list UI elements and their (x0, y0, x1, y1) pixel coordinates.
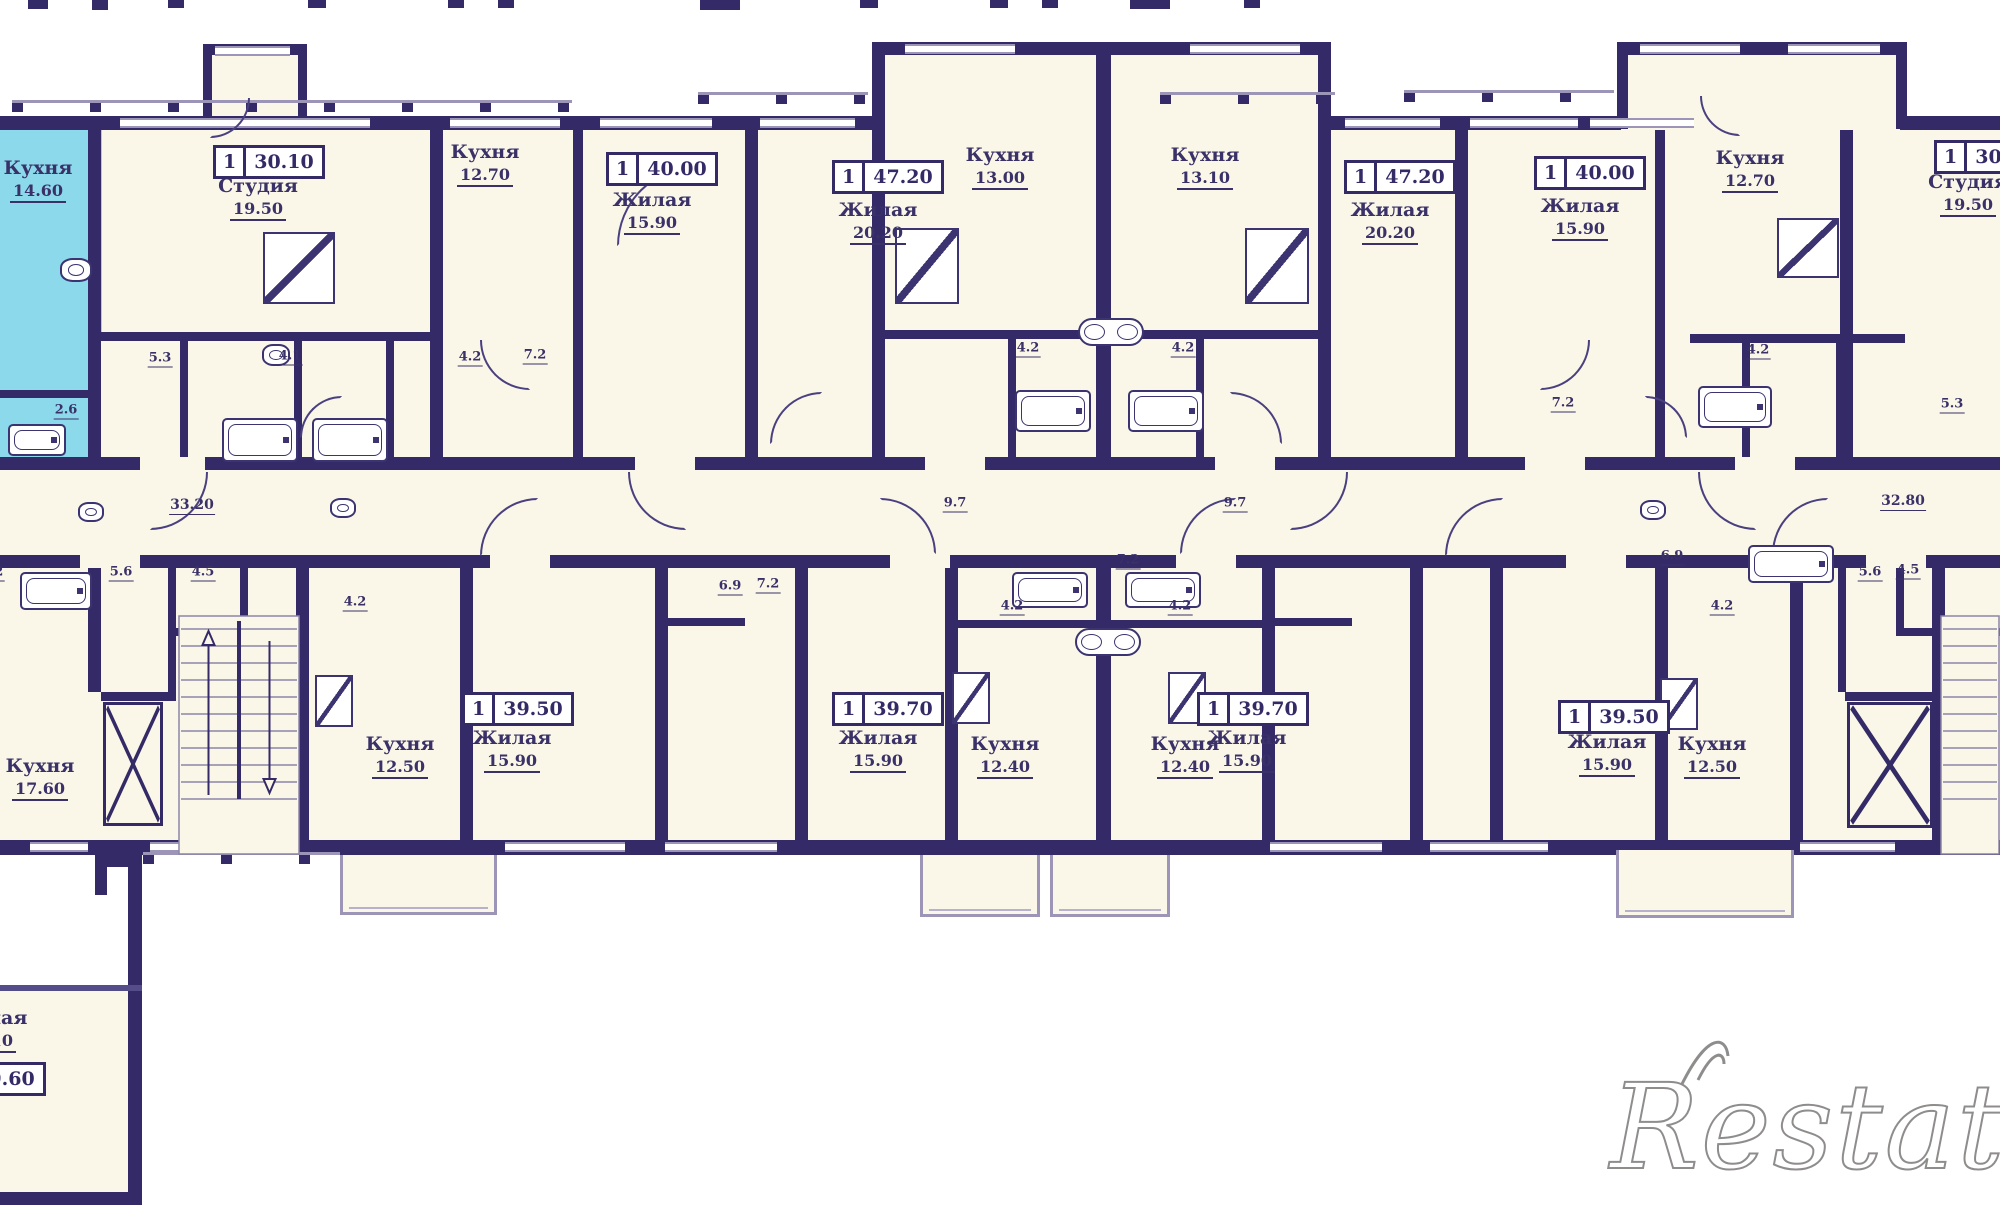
badge-room-count: 1 (465, 695, 495, 723)
badge-room-count: 1 (835, 695, 865, 723)
dimension-label: 5.6 (109, 565, 134, 580)
room-label: Кухня17.60 (0, 756, 100, 801)
dimension-label: 5.3 (148, 351, 173, 366)
wall (695, 457, 925, 470)
room-name: Жилая (818, 200, 938, 222)
wall (1896, 42, 1907, 129)
apartment-area-badge: 140.00 (1534, 156, 1646, 190)
dimension-value: 9.7 (1223, 496, 1248, 513)
wall (448, 0, 464, 8)
wall (180, 341, 188, 457)
room-name: Студия (1908, 172, 2000, 194)
room-label: Жилая20.20 (1330, 200, 1450, 245)
room-area: 14.60 (10, 182, 66, 203)
room-area: 19.50 (1940, 196, 1996, 217)
dimension-value: 5.2 (0, 565, 4, 582)
dimension-label: 4.1 (278, 349, 303, 364)
balcony (1050, 855, 1170, 917)
wall (872, 42, 885, 132)
balcony-rail (698, 92, 868, 104)
badge-room-count: 1 (835, 163, 865, 191)
window (1345, 118, 1440, 128)
room-name: Студия (198, 176, 318, 198)
wall (298, 44, 307, 127)
dimension-value: 5.6 (109, 565, 134, 582)
wall (1096, 55, 1111, 470)
room-area: 15.90 (484, 752, 540, 773)
dimension-value: 4.2 (1168, 599, 1193, 616)
room-name: Кухня (1652, 734, 1772, 756)
room-label: Кухня14.60 (0, 158, 98, 203)
window (600, 118, 712, 128)
wall (1845, 692, 1933, 701)
dimension-label: 6.9 (1660, 549, 1685, 564)
apartment-area-badge: 147.20 (832, 160, 944, 194)
apartment-area-badge: 139.50 (462, 692, 574, 726)
wall (168, 0, 184, 8)
room-name: Кухня (945, 734, 1065, 756)
window (1430, 842, 1548, 852)
apartment-area-badge: 139.70 (1197, 692, 1309, 726)
window (665, 842, 777, 852)
window (1190, 44, 1300, 54)
wall (101, 692, 176, 701)
window (1590, 118, 1694, 128)
wall (1690, 334, 1905, 343)
room-name: Жилая (452, 728, 572, 750)
room-label: Кухня12.40 (945, 734, 1065, 779)
bathtub-icon (312, 418, 388, 462)
badge-room-count: 1 (1537, 159, 1567, 187)
window (1800, 842, 1895, 852)
kitchen-icon (263, 232, 335, 304)
bathtub-icon (8, 424, 66, 456)
room-label: Кухня13.00 (940, 145, 1060, 190)
wall (1318, 130, 1331, 470)
sink-icon (78, 502, 104, 522)
kitchen-icon (1245, 228, 1309, 304)
dimension-label: 5.3 (1940, 397, 1965, 412)
wall (655, 618, 745, 626)
dimension-value: 4.5 (1896, 563, 1921, 580)
wall (1795, 457, 2000, 470)
wall (0, 555, 80, 568)
badge-room-count: 1 (1561, 703, 1591, 731)
room-name: Жилая (1330, 200, 1450, 222)
room-area: 12.70 (457, 166, 513, 187)
watermark-logo-curl (1668, 1022, 1738, 1092)
wall (498, 0, 514, 8)
bathtub-icon (222, 418, 298, 462)
badge-area-value: 39.70 (1230, 695, 1306, 723)
dimension-label: 9.7 (1223, 496, 1248, 511)
room-area: 15.90 (624, 214, 680, 235)
dimension-label: 2.6 (54, 403, 79, 418)
wall (1926, 555, 2000, 568)
wall (1617, 42, 1628, 129)
room-name: Жилая (1547, 732, 1667, 754)
dimension-value: 4.1 (278, 349, 303, 366)
room-name: Кухня (0, 756, 100, 778)
balcony-rail (1160, 92, 1335, 104)
room-label: Кухня12.70 (1690, 148, 1810, 193)
badge-area-value: 30.10 (1967, 143, 2000, 171)
room-area: 15.90 (1579, 756, 1635, 777)
dimension-label: 7.2 (756, 577, 781, 592)
watermark: Restate (1610, 1058, 2000, 1196)
window (30, 842, 88, 852)
dimension-value: 4.2 (1016, 341, 1041, 358)
room-area: 20.20 (850, 224, 906, 245)
room-area: 19.50 (230, 200, 286, 221)
room-area: 12.50 (372, 758, 428, 779)
dimension-label: 7.2 (523, 348, 548, 363)
dimension-label: 4.2 (458, 350, 483, 365)
dimension-label: 4.2 (1016, 341, 1041, 356)
double-sink-icon (1075, 628, 1141, 656)
wall (1455, 130, 1468, 470)
balcony-rail (1404, 90, 1614, 102)
dimension-value: 4.5 (191, 565, 216, 582)
sink-icon (330, 498, 356, 518)
badge-room-count: 1 (216, 148, 246, 176)
room-label: Жилая15.90 (818, 728, 938, 773)
wall (308, 0, 326, 8)
wall (795, 568, 808, 855)
apartment-area-badge: 130.10 (213, 145, 325, 179)
wall (128, 855, 142, 987)
elevator-right (1847, 702, 1933, 828)
bathtub-icon (20, 572, 92, 610)
annex-wall-light (0, 985, 142, 991)
dimension-label: 4.5 (191, 565, 216, 580)
dimension-label: 33.20 (169, 497, 215, 513)
room-name: Кухня (340, 734, 460, 756)
wall (1585, 457, 1735, 470)
balcony (1616, 850, 1794, 918)
wall (1096, 568, 1111, 855)
badge-area-value: 39.50 (495, 695, 571, 723)
room-label: Студия19.50 (1908, 172, 2000, 217)
apartment-area-badge: 147.20 (1344, 160, 1456, 194)
wall (1244, 0, 1260, 8)
dimension-label: 6.9 (718, 579, 743, 594)
badge-room-count: 1 (609, 155, 639, 183)
dimension-value: 6.9 (1660, 549, 1685, 566)
apartment-area-badge: 140.00 (606, 152, 718, 186)
dimension-value: 2.6 (54, 403, 79, 420)
dimension-value: 5.3 (1940, 397, 1965, 414)
badge-room-count: 1 (1347, 163, 1377, 191)
apartment-area-badge: 139.70 (832, 692, 944, 726)
wall (1262, 618, 1352, 626)
floor-plan: Кухня14.60Студия19.50Кухня12.70Жилая15.9… (0, 0, 2000, 1223)
wall (168, 568, 176, 692)
room-area: 13.00 (972, 169, 1028, 190)
dimension-value: 33.20 (169, 497, 215, 515)
wall (573, 130, 583, 470)
room-name: Кухня (0, 158, 98, 180)
apartment-area-badge: 139.60 (0, 1062, 46, 1096)
wall (0, 457, 140, 470)
room-label: Кухня12.50 (1652, 734, 1772, 779)
window (505, 842, 625, 852)
window (760, 118, 855, 128)
window (1788, 44, 1880, 54)
dimension-label: 4.2 (1000, 599, 1025, 614)
badge-area-value: 40.00 (1567, 159, 1643, 187)
dimension-value: 4.2 (1171, 341, 1196, 358)
room-name: Кухня (940, 145, 1060, 167)
wall (0, 390, 90, 398)
room-label: Кухня12.50 (340, 734, 460, 779)
wall (1236, 555, 1566, 568)
wall (655, 568, 668, 855)
room-area: 12.40 (977, 758, 1033, 779)
window (905, 44, 1015, 54)
sink-icon (60, 258, 92, 282)
wall (745, 130, 758, 470)
kitchen-icon (315, 675, 353, 727)
wall (92, 0, 108, 10)
room-name: Жилая (1520, 196, 1640, 218)
bathtub-icon (1748, 545, 1834, 583)
window (1640, 44, 1740, 54)
badge-room-count: 1 (1200, 695, 1230, 723)
room-area: 12.50 (1684, 758, 1740, 779)
badge-area-value: 47.20 (1377, 163, 1453, 191)
wall (1103, 620, 1269, 628)
wall (1836, 343, 1844, 457)
dimension-value: 9.7 (943, 496, 968, 513)
dimension-value: 7.2 (523, 348, 548, 365)
bathtub-icon (1698, 386, 1772, 428)
sink-icon (1640, 500, 1666, 520)
dimension-value: 32.80 (1880, 493, 1926, 511)
dimension-label: 4.2 (1710, 599, 1735, 614)
dimension-value: 7.2 (1116, 553, 1141, 570)
room-label: Студия19.50 (198, 176, 318, 221)
badge-area-value: 39.70 (865, 695, 941, 723)
room-label: Кухня12.70 (425, 142, 545, 187)
room-name: Кухня (425, 142, 545, 164)
wall (1318, 42, 1331, 132)
window (450, 118, 560, 128)
wall (28, 0, 48, 9)
badge-area-value: 47.20 (865, 163, 941, 191)
room-name: Кухня (1145, 145, 1265, 167)
stairwell-right (1940, 615, 2000, 855)
wall (985, 457, 1215, 470)
room-label: Жилая15.90 (592, 190, 712, 235)
room-label: Кухня13.10 (1145, 145, 1265, 190)
bathtub-icon (1128, 390, 1204, 432)
dimension-value: 7.2 (1551, 396, 1576, 413)
room-label: Жилая15.90 (1547, 732, 1667, 777)
dimension-value: 5.3 (148, 351, 173, 368)
dimension-label: 32.80 (1880, 493, 1926, 509)
room-name: Жилая (1187, 728, 1307, 750)
badge-area-value: 30.10 (246, 148, 322, 176)
apartment-area-badge: 139.50 (1558, 700, 1670, 734)
elevator-left (103, 702, 163, 826)
wall (95, 855, 107, 895)
badge-area-value: 39.60 (0, 1065, 43, 1093)
dimension-value: 4.2 (1000, 599, 1025, 616)
badge-room-count: 1 (1937, 143, 1967, 171)
wall (0, 1192, 142, 1205)
room-label: Жилая15.90 (452, 728, 572, 773)
dimension-label: 9.7 (943, 496, 968, 511)
dimension-value: 5.6 (1858, 565, 1883, 582)
window (215, 46, 290, 56)
dimension-value: 4.2 (343, 595, 368, 612)
badge-area-value: 39.50 (1591, 703, 1667, 731)
wall (860, 0, 878, 8)
dimension-label: 7.2 (1116, 553, 1141, 568)
room-name: Кухня (1690, 148, 1810, 170)
badge-area-value: 40.00 (639, 155, 715, 183)
room-area: 20.10 (0, 1032, 16, 1053)
balcony (920, 855, 1040, 917)
dimension-label: 4.2 (1746, 343, 1771, 358)
dimension-label: 4.5 (1896, 563, 1921, 578)
wall (1275, 457, 1525, 470)
room-area: 12.70 (1722, 172, 1778, 193)
wall (990, 0, 1008, 8)
room-name: Жилая (0, 1008, 48, 1030)
balcony-rail (12, 100, 572, 112)
wall (945, 620, 1111, 628)
room-label: Жилая15.90 (1187, 728, 1307, 773)
room-area: 13.10 (1177, 169, 1233, 190)
wall (1490, 568, 1503, 855)
wall (700, 0, 740, 10)
kitchen-icon (952, 672, 990, 724)
dimension-value: 4.2 (1746, 343, 1771, 360)
wall (950, 555, 1176, 568)
wall (1900, 116, 2000, 130)
wall (1790, 568, 1803, 855)
wall (128, 985, 142, 1198)
dimension-label: 4.2 (343, 595, 368, 610)
stairwell-left (178, 615, 300, 855)
window (1470, 118, 1578, 128)
room-name: Жилая (818, 728, 938, 750)
bathtub-icon (1015, 390, 1091, 432)
window (1270, 842, 1382, 852)
wall (1410, 568, 1423, 855)
wall (550, 555, 890, 568)
double-sink-icon (1078, 318, 1144, 346)
dimension-value: 4.2 (458, 350, 483, 367)
dimension-label: 4.2 (1168, 599, 1193, 614)
room-label: Жилая20.10 (0, 1008, 48, 1053)
wall (1838, 568, 1846, 692)
wall (1042, 0, 1058, 8)
wall (88, 332, 440, 341)
dimension-value: 4.2 (1710, 599, 1735, 616)
kitchen-icon (1777, 218, 1839, 278)
room-area: 15.90 (1552, 220, 1608, 241)
dimension-label: 5.6 (1858, 565, 1883, 580)
room-area: 15.90 (1219, 752, 1275, 773)
window (120, 118, 370, 128)
apartment-area-badge: 130.10 (1934, 140, 2000, 174)
room-area: 17.60 (12, 780, 68, 801)
room-area: 15.90 (850, 752, 906, 773)
wall (1130, 0, 1170, 9)
room-area: 20.20 (1362, 224, 1418, 245)
balcony (340, 855, 497, 915)
room-name: Жилая (592, 190, 712, 212)
dimension-label: 7.2 (1551, 396, 1576, 411)
dimension-label: 4.2 (1171, 341, 1196, 356)
room-label: Жилая20.20 (818, 200, 938, 245)
dimension-value: 7.2 (756, 577, 781, 594)
dimension-label: 5.2 (0, 565, 4, 580)
dimension-value: 6.9 (718, 579, 743, 596)
room-label: Жилая15.90 (1520, 196, 1640, 241)
